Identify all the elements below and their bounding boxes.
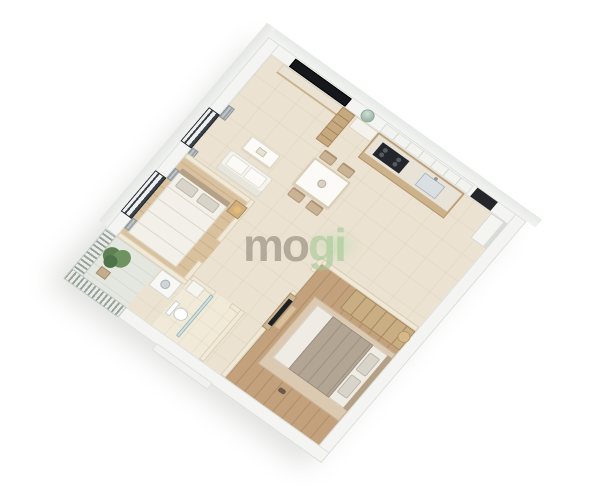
watermark-text-gi: gi: [308, 219, 345, 271]
watermark: mogi: [243, 222, 345, 268]
washer-drum: [158, 278, 172, 291]
render-canvas: mogi: [0, 0, 604, 504]
watermark-text-mo: mo: [243, 219, 308, 271]
table-tray: [255, 147, 267, 158]
table-decor-plate: [315, 178, 328, 190]
faucet: [433, 176, 439, 181]
bedside-lamp: [233, 206, 241, 214]
